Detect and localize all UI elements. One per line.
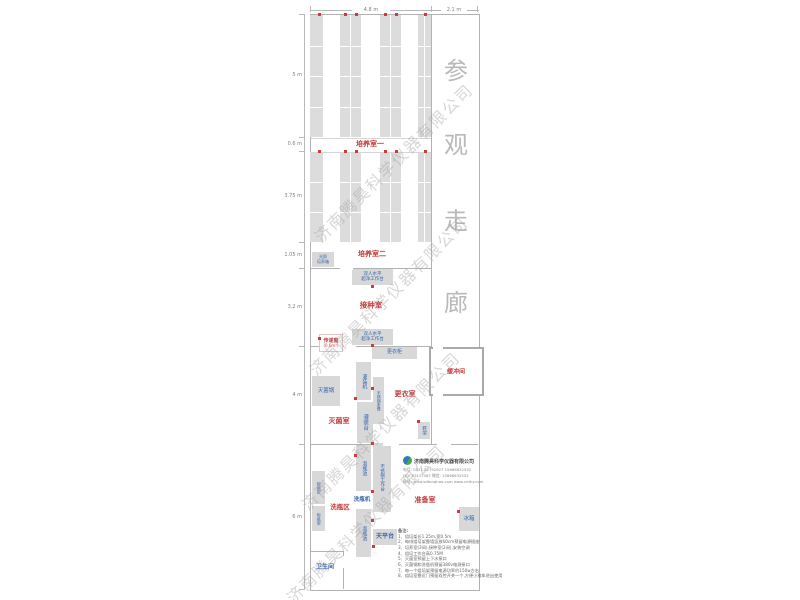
outlet-dot (318, 150, 321, 153)
dimension-tick (299, 589, 305, 590)
corridor-label-char: 参 (444, 51, 468, 86)
note-item: 8、组培室靠近门预留双控开关一个,方便小推车进出使用 (398, 573, 503, 579)
soak-pool-label: 泡瓶池 (361, 526, 367, 541)
corridor-label-char: 廊 (444, 283, 468, 318)
outlet-dot (355, 150, 358, 153)
outlet-dot (355, 13, 358, 16)
rack-shelf-line (310, 76, 323, 77)
room-label-changing: 更衣室 (395, 389, 416, 399)
outlet-dot (395, 13, 398, 16)
outlet-dot (371, 442, 374, 445)
filling-machine-label: 灌装机 (361, 374, 367, 389)
rack-center-line (424, 152, 425, 242)
dimension-top-right: 2.1 m (441, 7, 467, 13)
rack-center-line (390, 152, 391, 242)
outlet-dot (344, 13, 347, 16)
dimension-line-left (304, 14, 305, 589)
rack-center-line (350, 15, 351, 137)
shelving-rack (380, 15, 401, 137)
equipment-label-bottle-washer: 洗瓶机 (354, 495, 371, 503)
dimension-left-label: 0.6 m (274, 141, 302, 147)
room-label-prep: 准备室 (415, 495, 436, 505)
outlet-dot (457, 510, 460, 513)
shelving-rack (310, 152, 323, 242)
door-gap (349, 587, 363, 590)
dimension-left-label: 3.75 m (274, 193, 302, 199)
equipment-shoe-rack: 鞋架 (418, 422, 430, 439)
corridor-label-char: 走 (444, 201, 468, 236)
dimension-tick (299, 14, 305, 15)
room-label-buffer: 缓冲间 (447, 367, 465, 376)
buffer-door-gap (433, 345, 443, 350)
equipment-filling-table: 灌装台 (357, 402, 373, 443)
room-label-sterilization: 灭菌室 (329, 416, 350, 426)
wall-corridor-divider-lower (431, 396, 432, 444)
equipment-clean-bench-2: 双人水平 超净工作台 (352, 329, 393, 345)
room-label-culture1: 培养室一 (356, 139, 384, 149)
outlet-dot (318, 13, 321, 16)
dimension-tick (299, 137, 305, 138)
soak-pool-label: 泡瓶池 (361, 461, 367, 476)
dimension-left-label: 1.05 m (274, 252, 302, 258)
dimension-tick (299, 268, 305, 269)
shelving-rack (418, 15, 431, 137)
steel-worktable-label: 不锈钢工作台 (379, 464, 384, 491)
door-gap (437, 443, 451, 446)
equipment-clean-bench-1: 双人水平 超净工作台 (352, 269, 393, 285)
drying-rack-label: 晾瓶架 (316, 513, 321, 525)
wall-corridor-divider-upper (431, 14, 432, 347)
floor-plan-page: 培养室一 培养室二 接种室 灭菌室 更衣室 洗瓶区 准备室 洗瓶机 卫生间 缓冲… (0, 0, 800, 600)
shelving-rack (340, 152, 361, 242)
company-logo (403, 456, 412, 465)
outlet-dot (354, 397, 357, 400)
wall-toilet-top (310, 551, 343, 552)
dimension-tick (299, 242, 305, 243)
equipment-drying-rack-1: 晾瓶架 (312, 471, 325, 504)
shelving-rack (310, 15, 323, 137)
rack-shelf-line (310, 212, 323, 213)
rack-shelf-line (310, 107, 323, 108)
fridge-label: 冰箱 (463, 516, 474, 522)
outlet-dot (371, 519, 374, 522)
equipment-light-incubator: 光照 培养箱 (312, 252, 334, 267)
notes-block: 备注: 1、组培架长1.25m,宽0.5m2、每排组培架靠墙竖放60cm预留电源… (398, 528, 503, 579)
outlet-dot (384, 13, 387, 16)
equipment-light-incubator-line2: 培养箱 (317, 260, 329, 265)
filling-table-label: 灌装台 (362, 414, 368, 431)
equipment-balance-table: 天平台 (373, 529, 397, 545)
equipment-steel-worktable: 不锈钢工作台 (373, 443, 391, 512)
outlet-dot (384, 150, 387, 153)
shoe-rack-label: 鞋架 (421, 426, 426, 435)
dimension-tick (299, 346, 305, 347)
equipment-filling-machine: 灌装机 (356, 362, 371, 400)
door-gap (340, 267, 353, 270)
dimension-tick (299, 444, 305, 445)
outlet-dot (371, 344, 374, 347)
outlet-dot (344, 150, 347, 153)
sterilizer-label: 灭菌锅 (318, 388, 335, 394)
company-contact-line: 网址: www.sdtenghao.com www.cnthy.com (403, 479, 483, 485)
wardrobe-label: 更衣柜 (387, 350, 402, 356)
company-name: 济南腾昊科学仪器有限公司 (414, 458, 474, 465)
equipment-wardrobe: 更衣柜 (372, 347, 417, 359)
door-gap (383, 443, 399, 446)
room-label-culture2: 培养室二 (358, 249, 386, 259)
outlet-dot (395, 150, 398, 153)
outlet-dot (354, 454, 357, 457)
equipment-soak-pool-1: 泡瓶池 (356, 445, 371, 491)
outlet-dot (371, 285, 374, 288)
dimension-left-label: 3.2 m (274, 304, 302, 310)
rack-center-line (390, 15, 391, 137)
equipment-steel-bench: 不锈钢条凳 (373, 377, 384, 424)
outlet-dot (371, 490, 374, 493)
door-gap (342, 556, 345, 568)
rack-center-line (350, 152, 351, 242)
shelving-rack (418, 152, 431, 242)
door-gap (344, 345, 356, 348)
corridor-label-char: 观 (444, 125, 468, 160)
equipment-drying-rack-2: 晾瓶架 (312, 506, 325, 531)
dimension-tick (310, 6, 311, 12)
dimension-left-label: 5 m (274, 72, 302, 78)
room-label-inoculation: 接种室 (360, 300, 383, 311)
clean-bench-line2: 超净工作台 (361, 337, 384, 342)
dimension-tick (431, 6, 432, 12)
outlet-dot (371, 387, 374, 390)
balance-table-label: 天平台 (376, 534, 394, 541)
rack-center-line (424, 15, 425, 137)
clean-bench-line2: 超净工作台 (361, 277, 384, 282)
room-label-washing-area: 洗瓶区 (330, 501, 350, 511)
outlet-dot (417, 420, 420, 423)
dimension-tick (477, 6, 478, 12)
outlet-dot (424, 13, 427, 16)
rack-shelf-line (310, 46, 323, 47)
pass-window-box: 传递窗 (0.6m²) (319, 334, 343, 352)
dimension-left-label: 4 m (274, 392, 302, 398)
outlet-dot (372, 545, 375, 548)
buffer-door-gap (433, 392, 443, 397)
outlet-dot (318, 337, 321, 340)
rack-shelf-line (310, 182, 323, 183)
shelving-rack (380, 152, 401, 242)
equipment-sterilizer: 灭菌锅 (312, 376, 340, 406)
room-label-toilet: 卫生间 (316, 562, 334, 571)
shelving-rack (340, 15, 361, 137)
drying-rack-label: 晾瓶架 (316, 482, 321, 494)
steel-bench-label: 不锈钢条凳 (376, 391, 381, 411)
pass-window-size: (0.6m²) (324, 344, 339, 349)
dimension-tick (299, 151, 305, 152)
dimension-left-label: 6 m (274, 514, 302, 520)
company-contact-block: 电话: 0531-82792827 15866632552QQ: 8743748… (403, 467, 483, 485)
outlet-dot (424, 150, 427, 153)
equipment-soak-pool-2: 泡瓶池 (356, 509, 371, 557)
